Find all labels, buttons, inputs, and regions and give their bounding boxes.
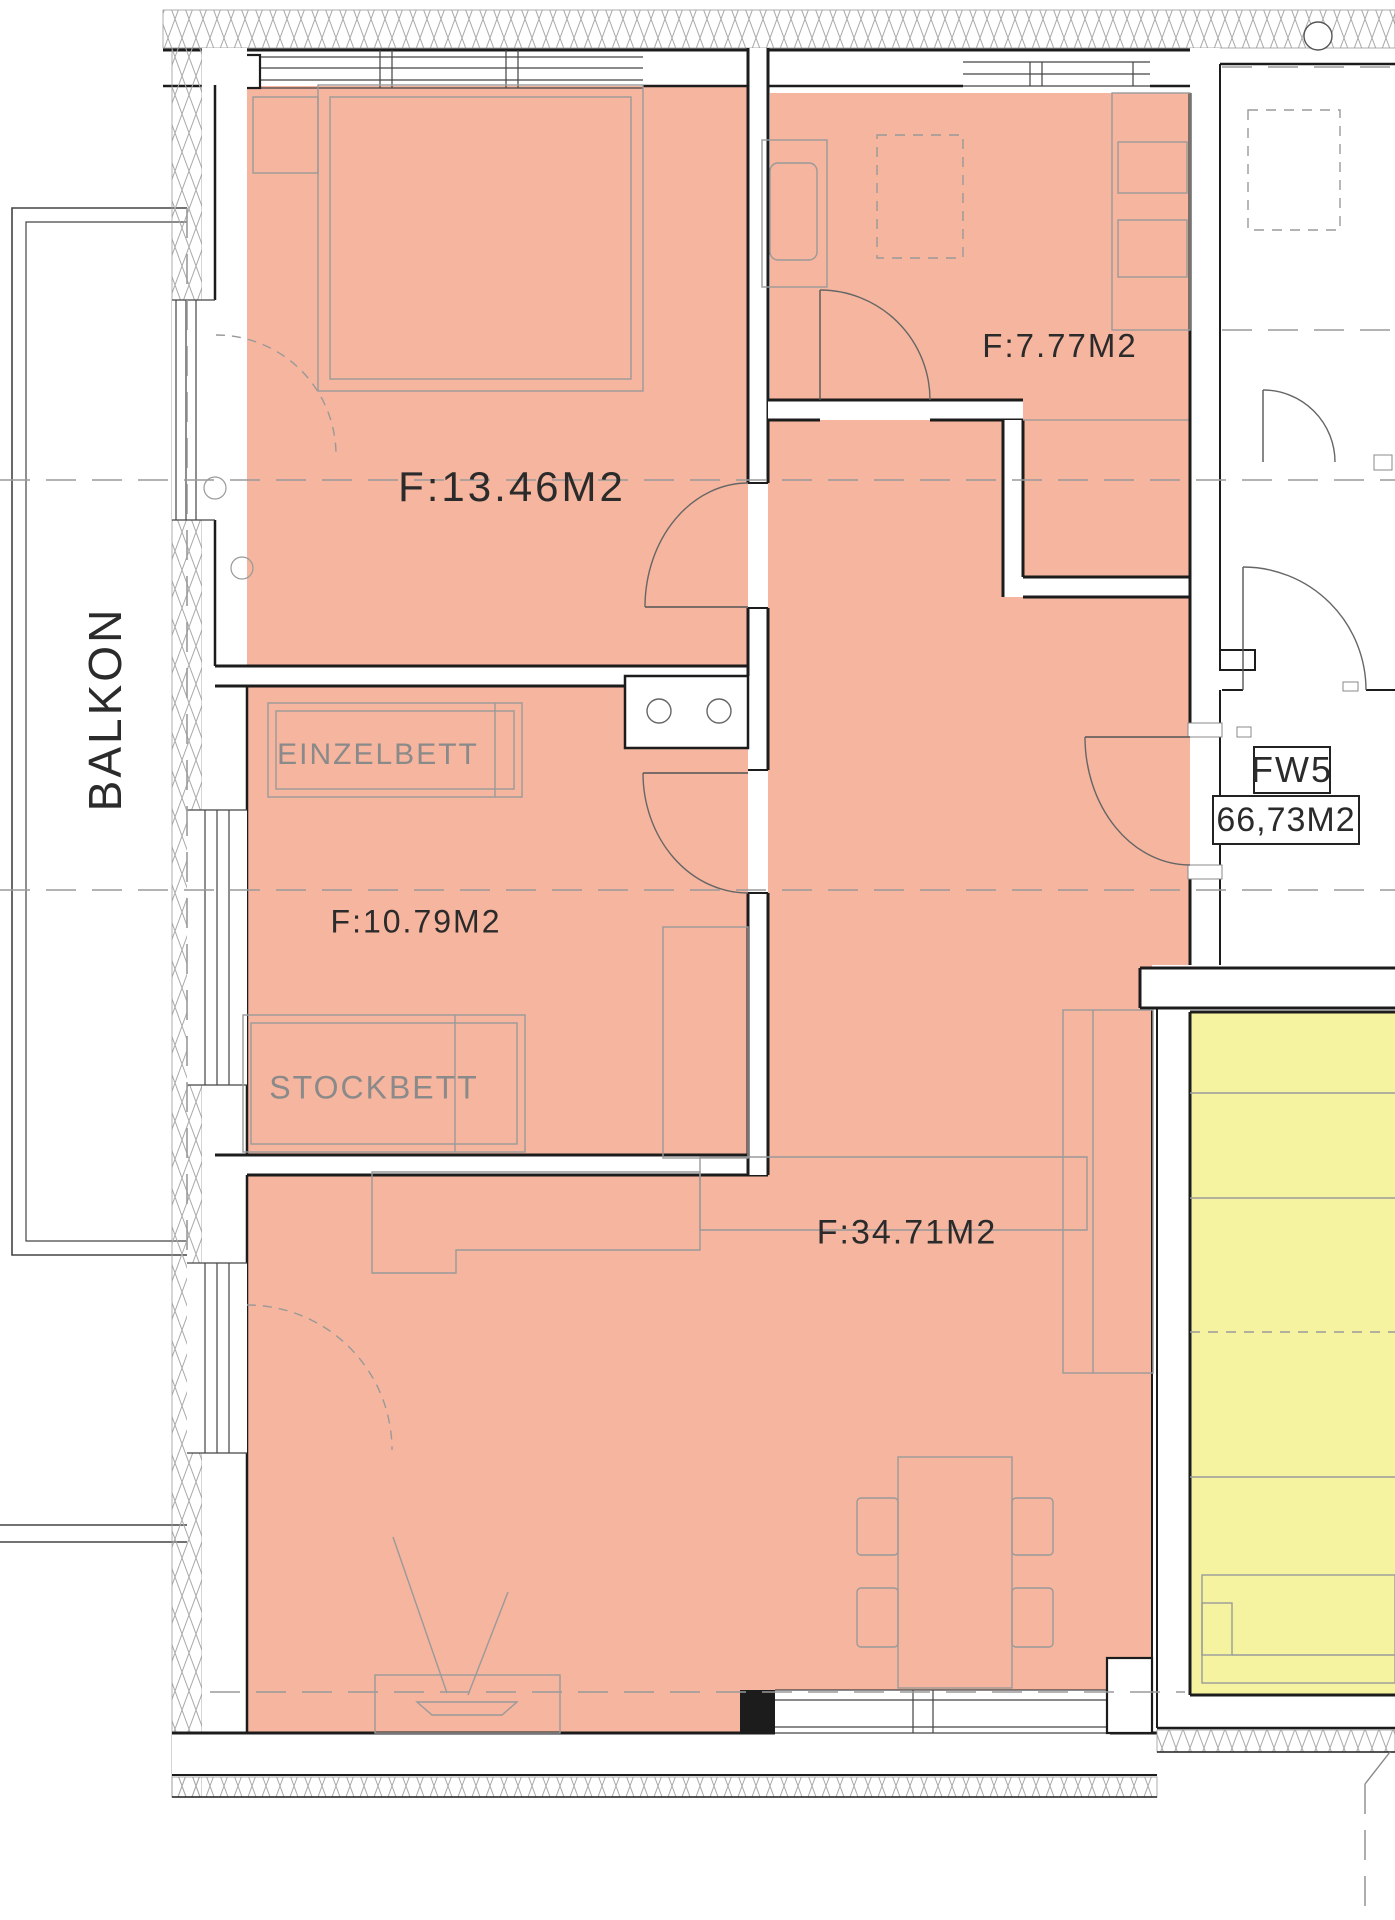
living-area-label: F:34.71M2 [817, 1214, 998, 1253]
single-bed-label: EINZELBETT [277, 738, 479, 772]
window-left-bedroom [172, 300, 242, 520]
shaft [625, 676, 748, 748]
unit-id-badge: FW5 [1253, 746, 1331, 794]
bunk-bed-label: STOCKBETT [269, 1070, 478, 1107]
stairwell [1190, 1012, 1395, 1695]
kids-area-label: F:10.79M2 [331, 904, 502, 941]
kitchen-area-label: F:7.77M2 [982, 327, 1137, 365]
window-left-living [187, 1263, 247, 1453]
unit-area-badge: 66,73M2 [1212, 795, 1360, 845]
floor-plan-canvas [0, 0, 1395, 1920]
furniture-neighbor [1248, 110, 1340, 230]
window-left-kids-room [187, 810, 247, 1085]
floor-plan: BALKON F:13.46M2 F:7.77M2 EINZELBETT F:1… [0, 0, 1395, 1920]
bedroom-area-label: F:13.46M2 [398, 463, 626, 511]
balcony-label: BALKON [78, 607, 132, 812]
balcony-outline [0, 208, 187, 1542]
